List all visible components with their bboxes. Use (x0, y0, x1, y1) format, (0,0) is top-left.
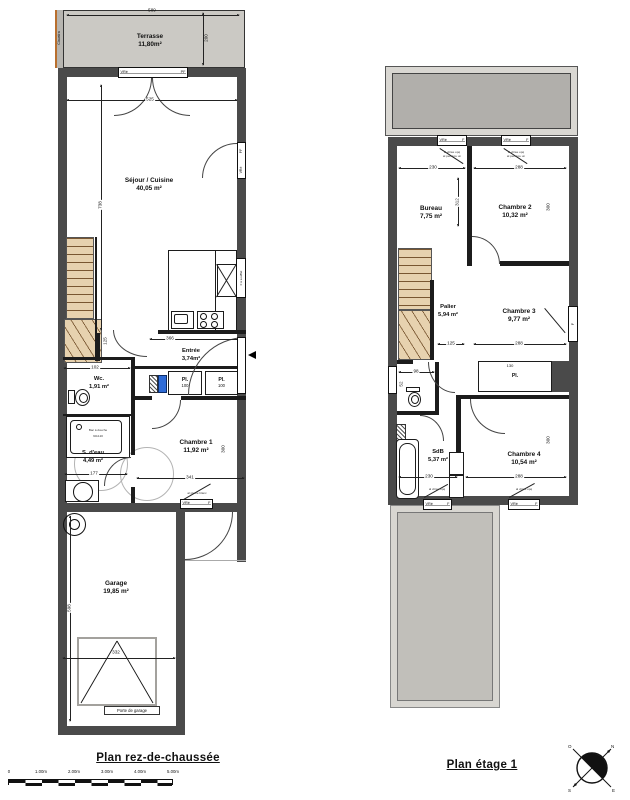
dimension-line (150, 339, 244, 340)
window-label: VRé (183, 502, 190, 506)
scale-tick: 0 (8, 770, 10, 774)
dim-chambre3-width: 288 (514, 342, 524, 347)
claustra-label: Claustra (57, 31, 61, 44)
dim-chambre2-width: 288 (514, 166, 524, 171)
dim-terrasse-height: 200 (205, 33, 210, 43)
scale-bar: 0 1.00m 2.00m 3.00m 4.00m 5.00m N E S O (0, 0, 630, 800)
window-note: al pleine blanc (187, 492, 206, 496)
window-chambre1: VRé F (180, 499, 213, 509)
dim-sejour-width: 525 (145, 98, 155, 103)
window-label: VRé (121, 71, 128, 75)
dim-right-height-bottom: 300 (547, 435, 552, 445)
dim-bureau-width: 230 (428, 166, 438, 171)
window-label: F (526, 139, 528, 143)
dim-entree-width: 366 (165, 337, 175, 342)
window-label: VRé (511, 503, 518, 507)
dim-closet: 130 (506, 364, 515, 368)
compass-letter: O (568, 744, 572, 749)
scale-tick: 2.00m (68, 770, 80, 774)
window-label: VRé (239, 167, 243, 174)
compass-letter: S (568, 788, 571, 793)
dim-interior-height: 738 (99, 200, 104, 210)
shower-size: 90x120 (93, 435, 103, 439)
scale-tick: 4.00m (134, 770, 146, 774)
window-label: F (208, 502, 210, 506)
scale-tick: 5.00m (167, 770, 179, 774)
dim-mid-height: 312 (456, 197, 461, 207)
closet-pl-etage: Pl. (478, 361, 552, 392)
window-label: F (535, 503, 537, 507)
window-bureau: VRé F (437, 135, 467, 146)
scale-bar-graphic (8, 779, 173, 785)
window-sdb: VRé F (423, 499, 452, 510)
dim-garage-door-width: 332 (111, 651, 121, 656)
dimension-line (67, 15, 239, 16)
dim-terrasse-width: 589 (147, 9, 157, 14)
compass-icon: N E S O (566, 742, 618, 794)
dim-chambre1-width: 341 (185, 476, 195, 481)
window-sejour-side (237, 142, 246, 179)
scale-tick: 1.00m (35, 770, 47, 774)
dimension-line (63, 658, 175, 659)
window-sejour-top: VRé PF (118, 67, 188, 78)
compass-letter: N (611, 744, 614, 749)
window-chambre2: VRé F (501, 135, 531, 146)
window-chambre4: VRé F (508, 499, 540, 510)
shower-label: Bac à douche (89, 429, 107, 433)
closet-label: Pl. (512, 374, 518, 380)
dim-chambre1-height: 300 (222, 444, 227, 454)
dim-sdeau-width: 177 (89, 472, 99, 477)
dim-garage-height: 598 (68, 603, 73, 613)
front-door-opening (237, 337, 246, 394)
window-label: F (447, 503, 449, 507)
dim-stairs-height: 125 (104, 336, 109, 346)
window-label: PF (181, 71, 186, 75)
window-note: al vitrée opq (516, 488, 532, 492)
window-label: F (462, 139, 464, 143)
garage-door-label: Porte de garage (104, 706, 160, 715)
window-note: al peinture un (507, 155, 525, 159)
dim-palier-width: 125 (446, 342, 456, 347)
scale-tick: 3.00m (101, 770, 113, 774)
dimension-line (70, 516, 71, 721)
scale-row (9, 783, 172, 786)
dim-stairs-width: 102 (90, 366, 100, 371)
dim-wc-height: 52 (400, 380, 405, 387)
dim-chambre4-width: 288 (514, 475, 524, 480)
dim-right-height-top: 300 (547, 202, 552, 212)
window-label: VRé (440, 139, 447, 143)
window-note: al peinture un (443, 155, 461, 159)
dim-wc-width: 98 (412, 370, 419, 375)
dim-sdb-width: 230 (424, 475, 434, 480)
window-label: F (571, 323, 575, 325)
window-wc-etage (388, 366, 397, 394)
window-label: VRé (426, 503, 433, 507)
window-label: F à soufflet (239, 271, 243, 286)
window-label: PF (239, 149, 243, 153)
window-note: al vitrée opq (429, 488, 445, 492)
compass-letter: E (612, 788, 615, 793)
window-label: VRé (504, 139, 511, 143)
